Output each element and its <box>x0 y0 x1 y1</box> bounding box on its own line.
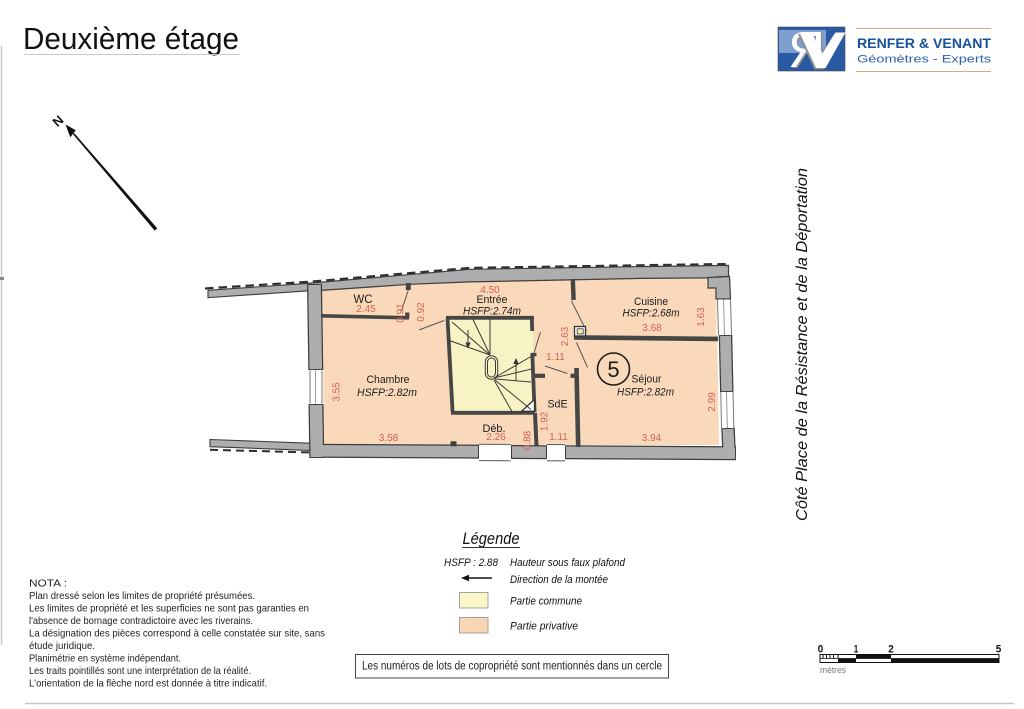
svg-text:HSFP:2.74m: HSFP:2.74m <box>463 306 521 318</box>
svg-text:N: N <box>50 112 67 129</box>
svg-text:La désignation des pièces corr: La désignation des pièces correspond à c… <box>29 628 325 640</box>
svg-text:Les limites de propriété et le: Les limites de propriété et les superfic… <box>29 603 309 615</box>
svg-text:l'absence de bornage contradic: l'absence de bornage contradictoire avec… <box>29 615 253 627</box>
svg-text:Séjour: Séjour <box>632 374 662 386</box>
svg-text:2.26: 2.26 <box>486 432 506 443</box>
svg-text:2.99: 2.99 <box>707 392 718 412</box>
svg-text:4.50: 4.50 <box>480 285 500 296</box>
svg-text:Géomètres - Experts: Géomètres - Experts <box>857 54 992 66</box>
svg-text:5: 5 <box>607 357 619 382</box>
svg-text:2: 2 <box>888 644 894 656</box>
svg-text:NOTA :: NOTA : <box>29 578 67 590</box>
svg-text:3.55: 3.55 <box>332 382 343 402</box>
svg-text:3.94: 3.94 <box>642 433 662 444</box>
svg-text:2.45: 2.45 <box>356 304 376 315</box>
svg-text:Partie commune: Partie commune <box>510 596 582 608</box>
svg-text:1.63: 1.63 <box>696 307 707 327</box>
svg-text:Hauteur sous faux plafond: Hauteur sous faux plafond <box>510 557 626 569</box>
svg-text:1.92: 1.92 <box>540 411 551 431</box>
svg-text:0.92: 0.92 <box>416 302 427 322</box>
svg-text:Plan dressé selon les limites: Plan dressé selon les limites de proprié… <box>29 590 255 602</box>
svg-text:Cuisine: Cuisine <box>634 296 668 308</box>
svg-text:Légende: Légende <box>463 530 520 548</box>
svg-text:0.91: 0.91 <box>396 303 407 323</box>
svg-text:2.63: 2.63 <box>560 326 571 346</box>
svg-text:3.68: 3.68 <box>642 323 662 334</box>
svg-text:mètres: mètres <box>820 665 846 675</box>
svg-text:3.58: 3.58 <box>379 433 399 444</box>
svg-text:HSFP:2.82m: HSFP:2.82m <box>357 387 417 399</box>
svg-text:Les numéros de lots de copropr: Les numéros de lots de copropriété sont … <box>362 661 662 673</box>
svg-text:Chambre: Chambre <box>367 374 410 386</box>
svg-text:RENFER & VENANT: RENFER & VENANT <box>857 36 992 51</box>
svg-text:5: 5 <box>996 644 1002 656</box>
svg-text:0.88: 0.88 <box>523 430 534 450</box>
svg-text:1: 1 <box>854 644 859 656</box>
svg-text:1.11: 1.11 <box>549 432 568 443</box>
svg-text:Direction de la montée: Direction de la montée <box>510 574 608 586</box>
svg-text:L'orientation de la flèche nor: L'orientation de la flèche nord est donn… <box>29 678 267 690</box>
svg-text:étude juridique.: étude juridique. <box>29 640 95 652</box>
svg-text:Les traits pointillés sont une: Les traits pointillés sont une interprét… <box>29 665 251 677</box>
svg-text:Deuxième étage: Deuxième étage <box>23 22 239 56</box>
svg-text:HSFP : 2.88: HSFP : 2.88 <box>444 557 499 569</box>
svg-text:1.11: 1.11 <box>546 352 565 363</box>
svg-text:HSFP:2.82m: HSFP:2.82m <box>617 387 674 399</box>
svg-text:Planimétrie en système indépen: Planimétrie en système indépendant. <box>29 653 181 665</box>
svg-text:Côté Place de la Résistance et: Côté Place de la Résistance et de la Dép… <box>794 168 811 521</box>
svg-text:Partie privative: Partie privative <box>510 621 578 633</box>
svg-text:HSFP:2.68m: HSFP:2.68m <box>623 308 680 320</box>
svg-text:SdE: SdE <box>548 399 568 411</box>
svg-text:0: 0 <box>818 644 824 656</box>
